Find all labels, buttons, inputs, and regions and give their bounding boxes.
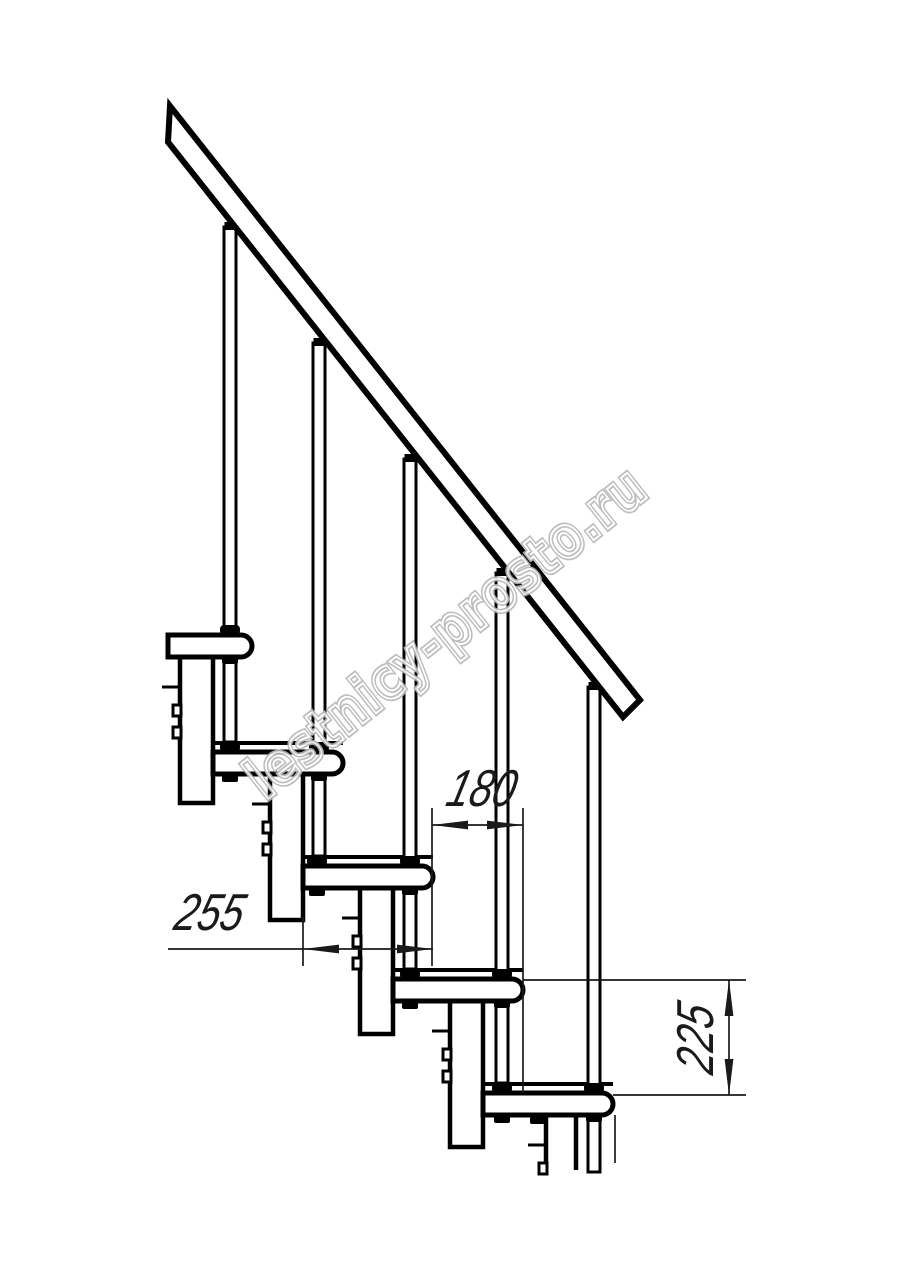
arrow-left-icon bbox=[303, 945, 339, 954]
baluster-rod-lower bbox=[404, 888, 416, 969]
baluster-rod-lower bbox=[496, 1001, 508, 1083]
support-column bbox=[180, 657, 213, 803]
rod-nut bbox=[309, 888, 325, 896]
rod-nut bbox=[222, 657, 238, 664]
rod-nut bbox=[494, 1001, 510, 1008]
dimension-label-180: 180 bbox=[441, 760, 524, 818]
module-flange-lines bbox=[180, 743, 613, 1084]
support-column bbox=[360, 888, 393, 1034]
tread bbox=[303, 866, 433, 888]
dimension-label-225: 225 bbox=[667, 996, 725, 1079]
rod-collar bbox=[220, 742, 240, 752]
rod-collar bbox=[400, 856, 420, 866]
dimension-225: 225 bbox=[523, 980, 746, 1163]
rod-collar bbox=[492, 969, 512, 979]
baluster-rod-lower bbox=[588, 1115, 600, 1172]
baluster-rod bbox=[588, 687, 600, 1093]
rod-nut bbox=[494, 1115, 510, 1123]
arrow-left-icon bbox=[432, 821, 468, 830]
arrow-up-icon bbox=[725, 980, 734, 1016]
rod-collar bbox=[220, 625, 240, 635]
rod-collar bbox=[307, 856, 327, 866]
support-column bbox=[450, 1001, 483, 1147]
dimension-label-255: 255 bbox=[168, 884, 251, 942]
rod-collar bbox=[492, 1083, 512, 1093]
support-column-cut bbox=[546, 1115, 576, 1170]
arrow-down-icon bbox=[725, 1059, 734, 1095]
baluster-rod-lower bbox=[224, 657, 236, 742]
baluster-rod bbox=[224, 227, 236, 635]
tread bbox=[483, 1093, 613, 1115]
rod-collar bbox=[400, 969, 420, 979]
tread bbox=[168, 635, 252, 657]
rod-nut bbox=[222, 774, 238, 782]
rod-nut bbox=[402, 1001, 418, 1009]
rod-collar bbox=[584, 1083, 604, 1093]
staircase-technical-drawing: 180 255 225 lestnicy-prosto.ru lestnicy-… bbox=[0, 0, 914, 1280]
tread-fixing-nut bbox=[530, 1117, 545, 1124]
baluster-rod-lower bbox=[313, 774, 325, 856]
rod-nut bbox=[402, 888, 418, 895]
drawing-linework: 180 255 225 lestnicy-prosto.ru lestnicy-… bbox=[0, 0, 914, 1280]
tread bbox=[393, 979, 523, 1001]
rod-nut bbox=[586, 1115, 602, 1122]
